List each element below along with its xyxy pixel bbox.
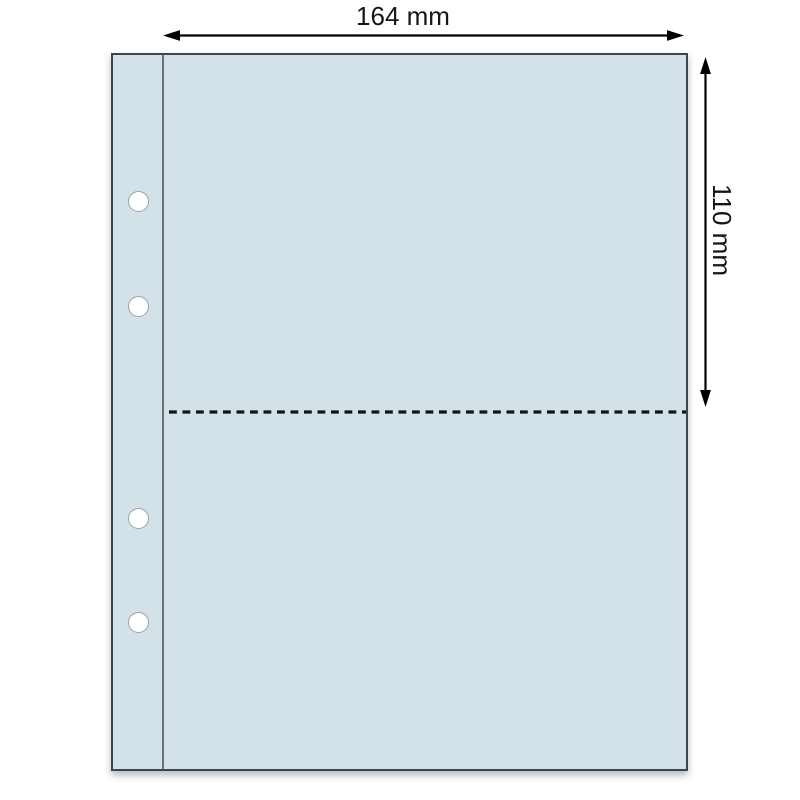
width-dimension-arrow [163,30,684,41]
diagram-lines-overlay [0,0,800,800]
width-arrow-right-head-icon [667,30,684,41]
width-arrow-left-head-icon [163,30,180,41]
product-diagram-canvas: 164 mm 110 mm [0,0,800,800]
height-dimension-label: 110 mm [707,140,737,320]
height-arrow-bottom-head-icon [700,390,711,407]
height-arrow-top-head-icon [700,57,711,74]
width-dimension-label: 164 mm [313,1,493,31]
